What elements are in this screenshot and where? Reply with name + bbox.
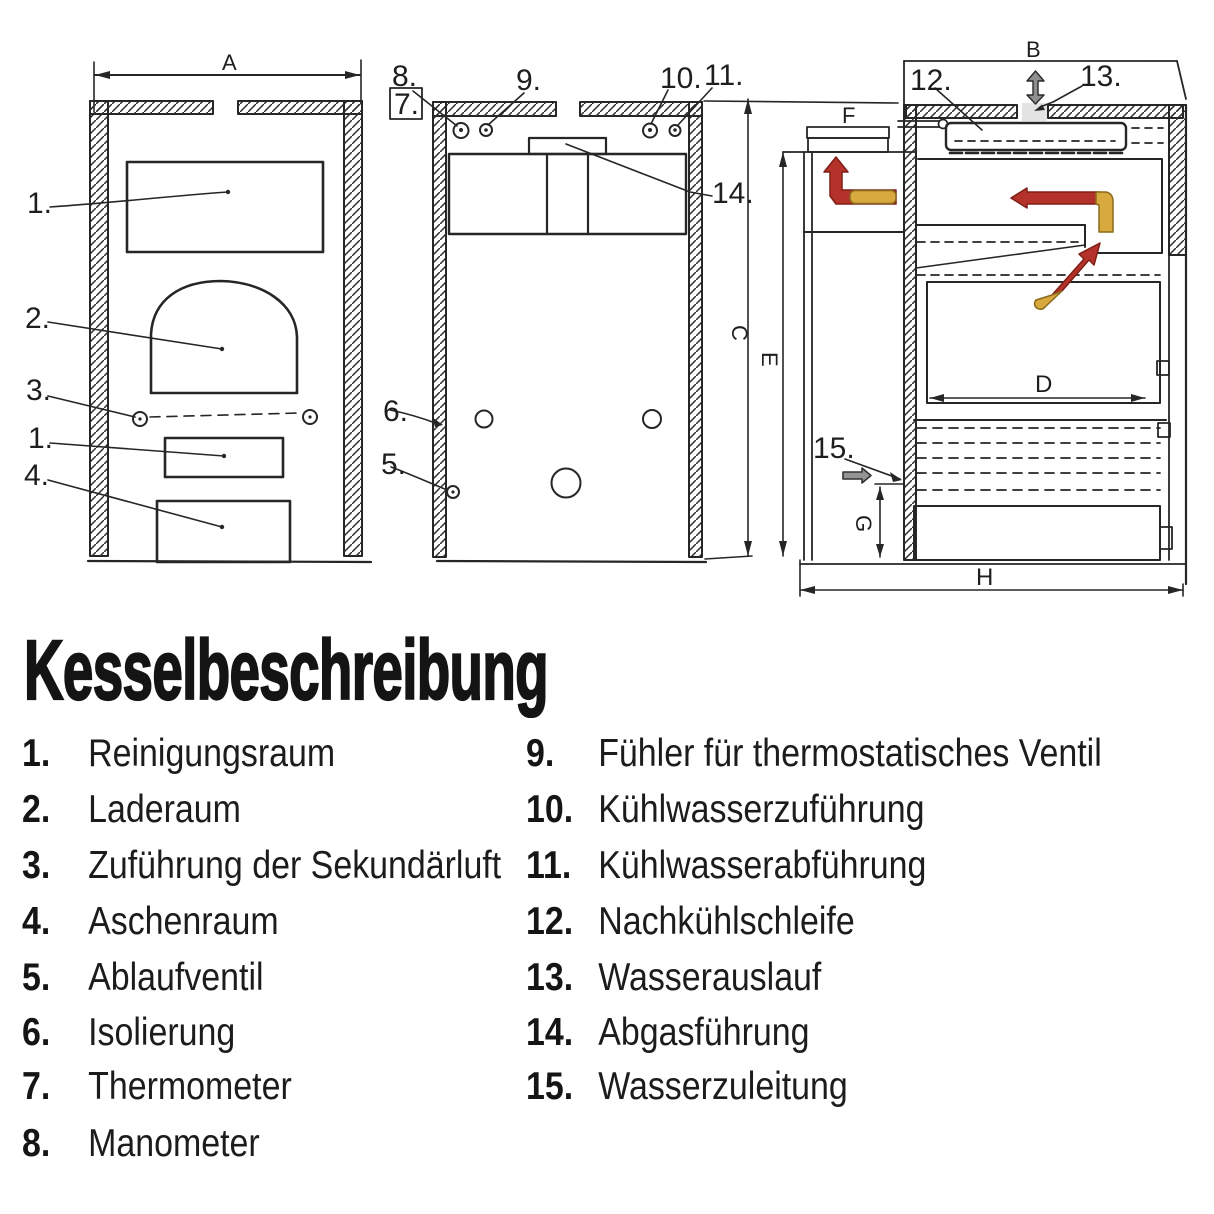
svg-text:F: F — [842, 103, 855, 128]
svg-text:5.: 5. — [381, 448, 406, 481]
svg-text:H: H — [976, 564, 993, 591]
svg-text:D: D — [1035, 371, 1052, 398]
svg-text:1.: 1. — [28, 422, 53, 455]
svg-text:15.: 15. — [813, 432, 855, 465]
svg-text:13.: 13. — [1080, 60, 1122, 93]
svg-text:4.: 4. — [24, 459, 49, 492]
svg-text:G: G — [851, 515, 876, 532]
svg-text:B: B — [1026, 37, 1041, 62]
svg-text:7.: 7. — [394, 88, 419, 121]
svg-text:9.: 9. — [516, 64, 541, 97]
svg-text:C: C — [727, 325, 752, 341]
svg-text:6.: 6. — [383, 395, 408, 428]
svg-text:A: A — [222, 50, 237, 75]
svg-text:12.: 12. — [910, 64, 952, 97]
svg-text:11.: 11. — [704, 59, 743, 92]
svg-text:E: E — [757, 352, 782, 367]
svg-text:2.: 2. — [25, 302, 50, 335]
svg-text:10.: 10. — [660, 62, 702, 95]
svg-text:1.: 1. — [27, 187, 52, 220]
svg-text:3.: 3. — [26, 374, 51, 407]
